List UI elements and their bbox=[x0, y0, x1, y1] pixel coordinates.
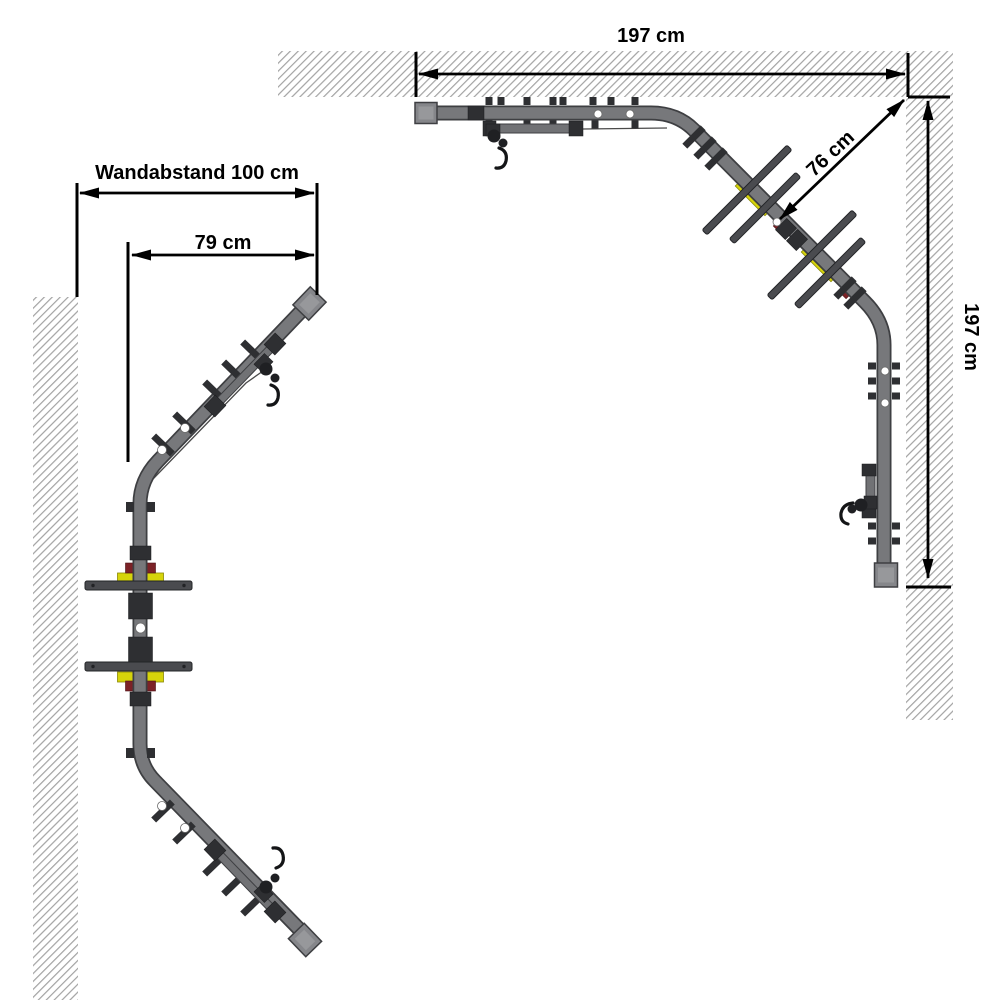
winch-hook bbox=[496, 148, 506, 168]
label-wall-distance: Wandabstand 100 cm bbox=[95, 162, 299, 184]
wheel-bar bbox=[85, 662, 192, 671]
clamp-block bbox=[130, 546, 151, 560]
winch-pulley bbox=[499, 139, 508, 148]
label-offset-79: 79 cm bbox=[195, 232, 252, 254]
clamp-tab bbox=[632, 121, 639, 129]
bolt bbox=[182, 584, 185, 587]
clamp-tab bbox=[126, 748, 134, 758]
bolt bbox=[91, 665, 94, 668]
winch-pulley bbox=[271, 874, 280, 883]
rail-clamp bbox=[569, 121, 583, 136]
clamp-tab bbox=[486, 97, 493, 105]
bolt-hole bbox=[594, 110, 602, 118]
winch-hook bbox=[273, 848, 283, 868]
clamp-tab bbox=[868, 378, 876, 385]
clamp-tab bbox=[868, 393, 876, 400]
clamp-tab bbox=[608, 97, 615, 105]
clamp-tab bbox=[550, 97, 557, 105]
label-height-197: 197 cm bbox=[960, 303, 982, 371]
winch-pulley bbox=[260, 363, 273, 376]
clamp-tab bbox=[892, 393, 900, 400]
bolt-hole bbox=[881, 367, 889, 375]
wall-left bbox=[33, 297, 78, 1000]
winch-pulley bbox=[260, 881, 273, 894]
rack-tube-outline bbox=[426, 113, 884, 567]
clamp-tab bbox=[868, 538, 876, 545]
clamp-tab bbox=[126, 502, 134, 512]
winch-pulley bbox=[848, 505, 857, 514]
bolt-hole bbox=[158, 802, 167, 811]
clamp-tab bbox=[632, 97, 639, 105]
bolt-hole bbox=[181, 824, 190, 833]
end-cap bbox=[415, 103, 437, 124]
rack-tube bbox=[426, 113, 884, 567]
slide-rail bbox=[488, 124, 580, 133]
clamp-tab bbox=[868, 363, 876, 370]
clamp-tab bbox=[147, 748, 155, 758]
dimension-diagonal-76 bbox=[780, 100, 904, 219]
winch-pulley bbox=[271, 374, 280, 383]
clamp-tab bbox=[892, 363, 900, 370]
clamp-block bbox=[129, 593, 153, 619]
winch-pulley bbox=[488, 130, 501, 143]
installation-diagram: Wandabstand 100 cm 79 cm 197 cm 76 cm 19… bbox=[0, 0, 1000, 1000]
clamp-block bbox=[468, 106, 484, 120]
bolt bbox=[91, 584, 94, 587]
label-diagonal-76: 76 cm bbox=[802, 126, 858, 181]
bolt-hole bbox=[773, 218, 781, 226]
clamp-tab bbox=[868, 523, 876, 530]
clamp-tab bbox=[147, 502, 155, 512]
rack-straight-wall bbox=[85, 287, 326, 957]
label-width-197: 197 cm bbox=[617, 25, 685, 47]
clamp-block bbox=[130, 692, 151, 706]
rail-clamp bbox=[862, 464, 876, 476]
bolt bbox=[182, 665, 185, 668]
bolt-hole bbox=[136, 623, 146, 633]
clamp-tab bbox=[592, 121, 599, 129]
bolt-hole bbox=[626, 110, 634, 118]
diagram-canvas: Wandabstand 100 cm 79 cm 197 cm 76 cm 19… bbox=[0, 0, 1000, 1000]
clamp-block bbox=[129, 637, 153, 663]
winch-hook bbox=[268, 385, 278, 405]
clamp-tab bbox=[892, 538, 900, 545]
clamp-tab bbox=[560, 97, 567, 105]
clamp-tab bbox=[590, 97, 597, 105]
clamp-tab bbox=[498, 97, 505, 105]
bolt-hole bbox=[881, 399, 889, 407]
clamp-tab bbox=[524, 97, 531, 105]
end-cap bbox=[875, 563, 898, 587]
bolt-hole bbox=[181, 424, 190, 433]
wheel-bar bbox=[85, 581, 192, 590]
bolt-hole bbox=[158, 446, 167, 455]
clamp-tab bbox=[892, 523, 900, 530]
wall-right bbox=[906, 97, 953, 720]
dimension-offset-79 bbox=[128, 242, 314, 462]
clamp-tab bbox=[892, 378, 900, 385]
